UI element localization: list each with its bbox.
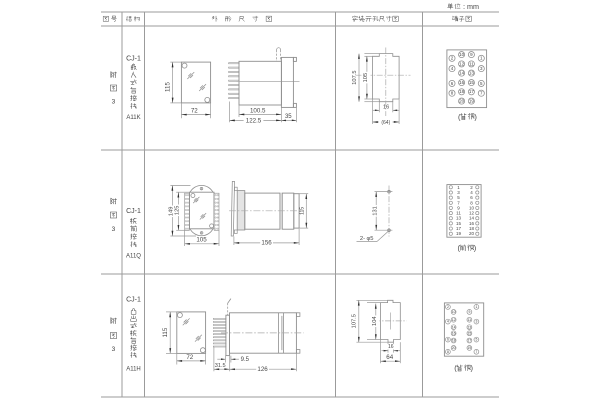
svg-text:6: 6 <box>447 338 449 342</box>
svg-text:104: 104 <box>372 316 378 326</box>
svg-text:16: 16 <box>452 331 456 335</box>
svg-text:10: 10 <box>452 310 456 314</box>
svg-text:14: 14 <box>452 325 456 329</box>
svg-text:7: 7 <box>480 91 483 96</box>
svg-text:12: 12 <box>459 61 465 66</box>
svg-text:15: 15 <box>469 80 475 85</box>
svg-text:(64): (64) <box>381 120 390 126</box>
svg-text:19: 19 <box>456 231 462 236</box>
svg-text:5: 5 <box>475 338 477 342</box>
svg-text:1: 1 <box>475 305 477 309</box>
svg-text:122.5: 122.5 <box>246 117 262 124</box>
svg-text:19: 19 <box>469 99 475 104</box>
svg-text:(: ( <box>457 244 460 253</box>
svg-text:16: 16 <box>459 80 465 85</box>
svg-text:8: 8 <box>451 91 454 96</box>
svg-text:13: 13 <box>468 325 472 329</box>
svg-text:17: 17 <box>469 89 475 94</box>
svg-text:10: 10 <box>459 52 465 57</box>
svg-text:2-: 2- <box>360 236 365 242</box>
svg-text:3: 3 <box>112 98 116 105</box>
svg-text:16: 16 <box>388 344 394 350</box>
svg-text:125: 125 <box>175 206 181 216</box>
svg-text:2: 2 <box>447 305 449 309</box>
svg-text:CJ-1: CJ-1 <box>126 208 141 215</box>
svg-text:7: 7 <box>475 350 477 354</box>
svg-text:2: 2 <box>451 56 454 61</box>
svg-text:8: 8 <box>447 350 449 354</box>
svg-text:107.5: 107.5 <box>352 70 358 84</box>
svg-text:115: 115 <box>164 82 171 92</box>
svg-text:20: 20 <box>469 231 475 236</box>
svg-text:6: 6 <box>451 81 454 86</box>
svg-text:mm: mm <box>467 2 479 11</box>
svg-text:9: 9 <box>468 310 470 314</box>
svg-text:126: 126 <box>257 366 268 373</box>
svg-text:3: 3 <box>112 346 116 353</box>
svg-text:72: 72 <box>191 108 198 115</box>
svg-text:31.5: 31.5 <box>215 363 226 369</box>
svg-text:9.5: 9.5 <box>241 357 250 363</box>
svg-text:13: 13 <box>469 71 475 76</box>
svg-text:3: 3 <box>112 226 116 233</box>
svg-text:15: 15 <box>468 331 472 335</box>
svg-text:5: 5 <box>480 81 483 86</box>
svg-text:9: 9 <box>470 52 473 57</box>
svg-text:16: 16 <box>383 104 389 110</box>
svg-text:φ5: φ5 <box>367 236 374 242</box>
svg-text:CJ-1: CJ-1 <box>126 297 141 304</box>
svg-text:115: 115 <box>162 327 169 337</box>
svg-text:11: 11 <box>468 318 472 322</box>
svg-text:35: 35 <box>285 114 292 120</box>
svg-text:72: 72 <box>186 354 193 361</box>
svg-text:131: 131 <box>373 206 379 216</box>
svg-text:CJ-1: CJ-1 <box>126 56 141 63</box>
svg-text:105: 105 <box>196 237 207 244</box>
svg-text:3: 3 <box>475 320 477 324</box>
svg-text:20: 20 <box>452 346 456 350</box>
svg-text:1: 1 <box>480 56 483 61</box>
svg-text:4: 4 <box>447 320 449 324</box>
svg-text:64: 64 <box>386 354 393 361</box>
svg-text:17: 17 <box>468 339 472 343</box>
svg-text:107.5: 107.5 <box>351 314 357 328</box>
svg-text::: : <box>463 2 465 11</box>
svg-text:4: 4 <box>451 66 454 71</box>
svg-text:(: ( <box>454 364 457 373</box>
svg-text:11: 11 <box>469 61 474 66</box>
svg-text:115: 115 <box>299 207 305 215</box>
svg-text:): ) <box>474 244 477 253</box>
svg-text:14: 14 <box>459 71 465 76</box>
svg-text:105: 105 <box>363 73 369 83</box>
svg-text:18: 18 <box>459 89 465 94</box>
svg-text:A11Q: A11Q <box>126 254 141 260</box>
svg-text:): ) <box>474 112 477 121</box>
svg-text:A11H: A11H <box>126 367 141 373</box>
svg-text:): ) <box>471 364 474 373</box>
svg-text:A11K: A11K <box>126 115 140 121</box>
svg-text:20: 20 <box>459 99 465 104</box>
svg-text:(: ( <box>458 112 461 121</box>
svg-text:100.5: 100.5 <box>250 107 266 114</box>
svg-text:156: 156 <box>261 240 272 247</box>
svg-text:18: 18 <box>452 339 456 343</box>
svg-text:3: 3 <box>480 66 483 71</box>
svg-text:19: 19 <box>468 346 472 350</box>
svg-text:12: 12 <box>452 318 456 322</box>
